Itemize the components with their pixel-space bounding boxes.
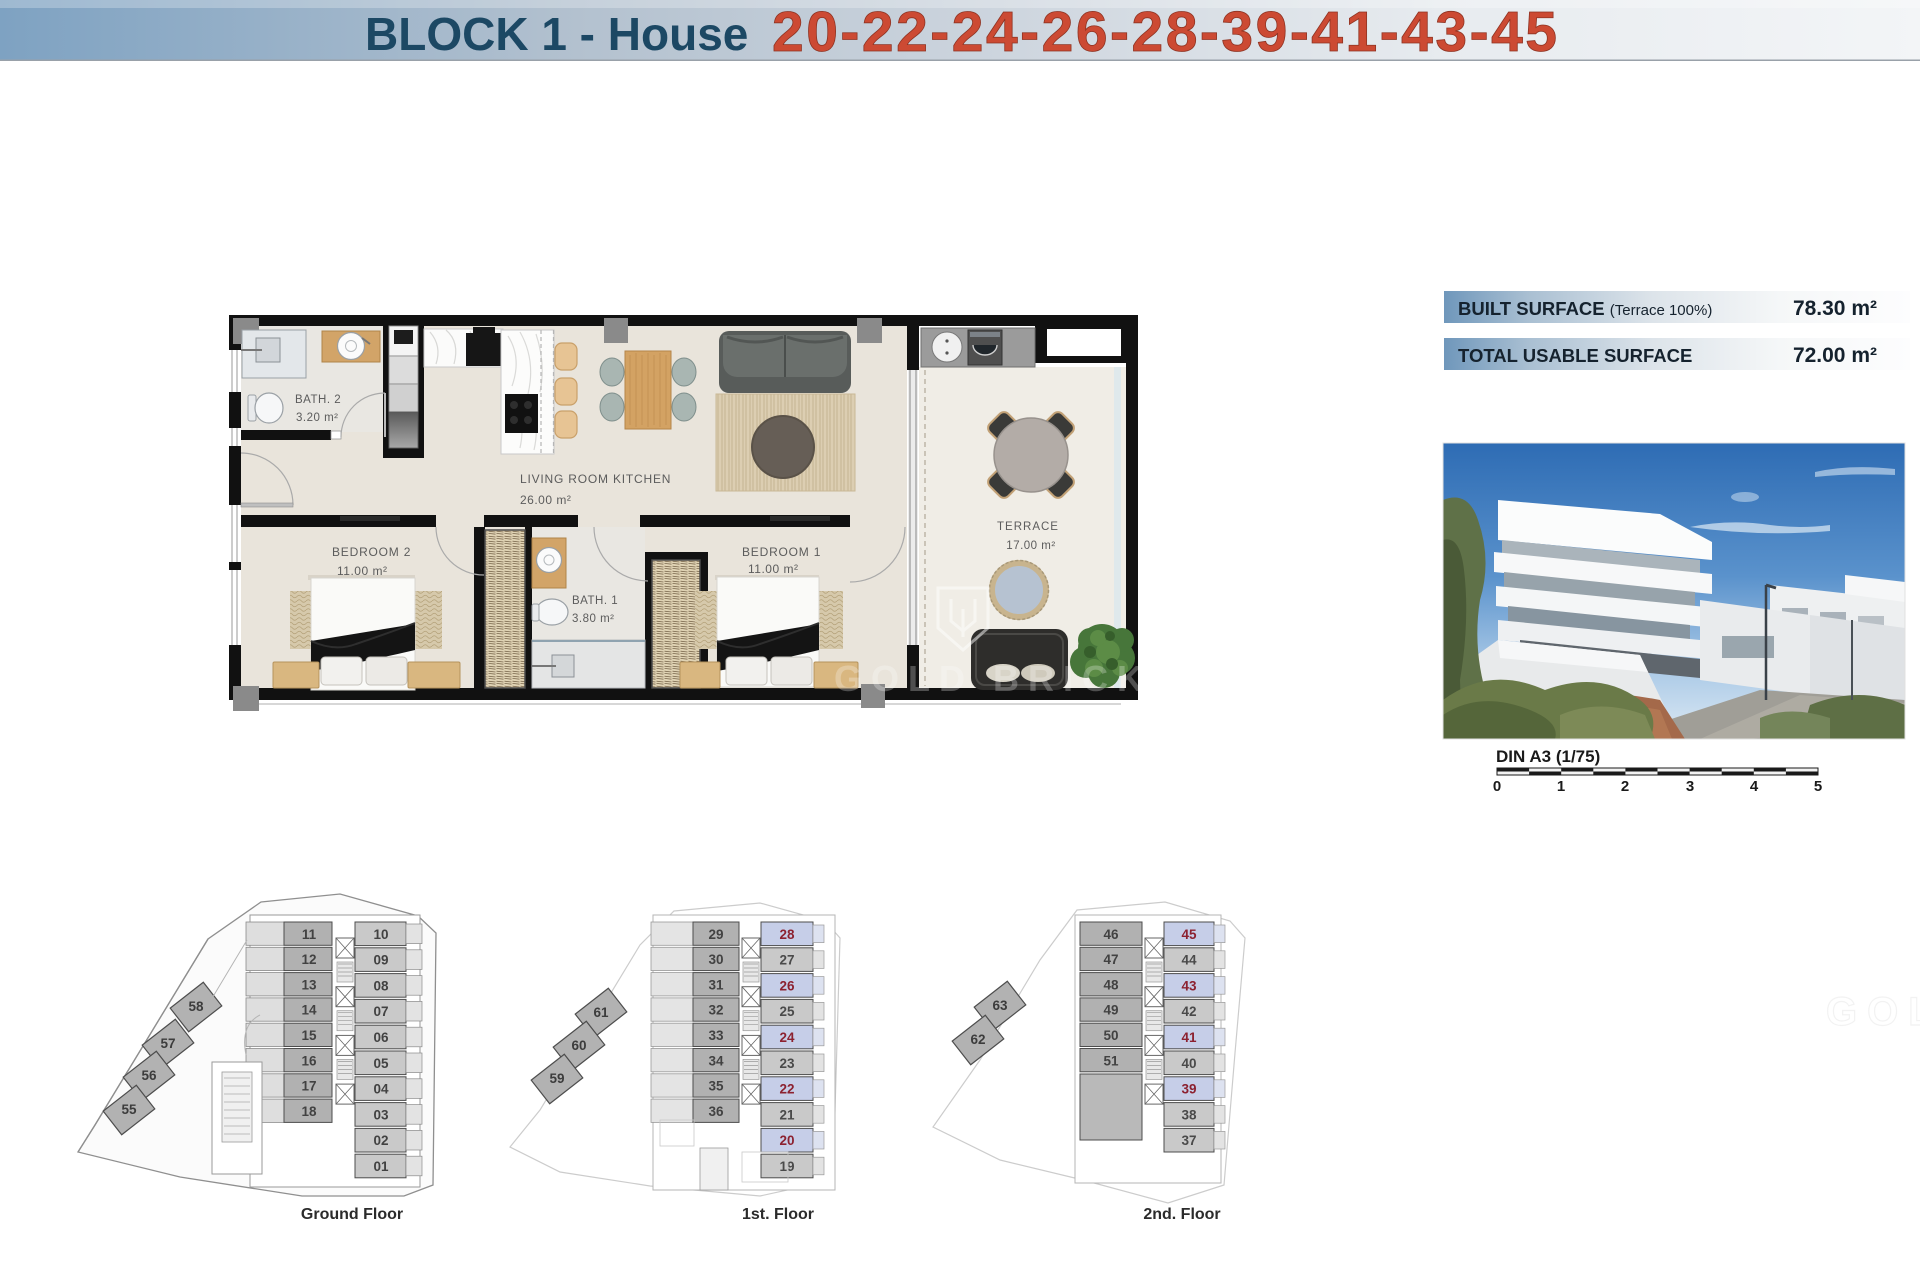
svg-text:45: 45 [1181,927,1197,942]
svg-text:TERRACE: TERRACE [997,521,1059,533]
svg-text:40: 40 [1181,1056,1196,1071]
svg-text:62: 62 [970,1032,985,1047]
svg-text:59: 59 [549,1071,564,1086]
svg-text:35: 35 [708,1079,724,1094]
svg-text:21: 21 [779,1107,795,1122]
svg-text:51: 51 [1103,1053,1119,1068]
svg-text:58: 58 [188,999,204,1014]
svg-text:36: 36 [708,1104,724,1119]
svg-text:57: 57 [160,1036,175,1051]
svg-text:19: 19 [779,1159,794,1174]
svg-text:06: 06 [373,1030,389,1045]
svg-text:20-22-24-26-28-39-41-43-45: 20-22-24-26-28-39-41-43-45 [772,0,1559,64]
svg-text:31: 31 [708,977,724,992]
svg-text:37: 37 [1181,1133,1196,1148]
svg-text:55: 55 [121,1102,137,1117]
svg-text:07: 07 [373,1004,388,1019]
svg-text:18: 18 [301,1104,317,1119]
svg-text:63: 63 [992,998,1008,1013]
svg-text:16: 16 [301,1053,317,1068]
svg-text:41: 41 [1181,1030,1197,1045]
svg-text:3.20 m²: 3.20 m² [296,412,339,424]
svg-text:78.30 m²: 78.30 m² [1793,297,1877,320]
svg-text:38: 38 [1181,1107,1197,1122]
svg-text:26.00 m²: 26.00 m² [520,493,571,507]
svg-text:56: 56 [141,1068,157,1083]
svg-text:11.00 m²: 11.00 m² [748,562,798,576]
svg-text:61: 61 [593,1005,609,1020]
svg-text:10: 10 [373,927,388,942]
svg-text:GOLD: GOLD [1826,990,1920,1034]
svg-text:2nd. Floor: 2nd. Floor [1143,1206,1220,1223]
svg-text:BLOCK 1 - House: BLOCK 1 - House [365,8,748,60]
svg-text:30: 30 [708,952,723,967]
svg-text:1: 1 [1557,778,1565,795]
svg-text:BEDROOM 2: BEDROOM 2 [332,545,411,559]
svg-text:32: 32 [708,1003,723,1018]
svg-text:20: 20 [779,1133,794,1148]
svg-text:03: 03 [373,1107,389,1122]
svg-text:3.80 m²: 3.80 m² [572,613,615,625]
svg-text:4: 4 [1750,778,1759,795]
svg-text:33: 33 [708,1028,724,1043]
svg-text:11.00 m²: 11.00 m² [337,564,387,578]
svg-text:Ground Floor: Ground Floor [301,1206,403,1223]
svg-text:DIN A3 (1/75): DIN A3 (1/75) [1496,747,1600,766]
svg-text:25: 25 [779,1004,795,1019]
svg-text:44: 44 [1181,953,1197,968]
svg-text:02: 02 [373,1133,388,1148]
svg-text:39: 39 [1181,1082,1196,1097]
svg-text:13: 13 [301,977,317,992]
svg-text:LIVING ROOM KITCHEN: LIVING ROOM KITCHEN [520,472,671,486]
svg-text:01: 01 [373,1159,389,1174]
svg-text:3: 3 [1686,778,1694,795]
svg-text:17.00 m²: 17.00 m² [1006,540,1055,552]
svg-text:TOTAL USABLE SURFACE: TOTAL USABLE SURFACE [1458,345,1692,366]
svg-text:08: 08 [373,978,389,993]
svg-text:60: 60 [571,1038,586,1053]
svg-text:24: 24 [779,1030,795,1045]
svg-text:15: 15 [301,1028,317,1043]
svg-text:50: 50 [1103,1028,1118,1043]
svg-text:BUILT SURFACE (Terrace 100%): BUILT SURFACE (Terrace 100%) [1458,298,1712,319]
svg-text:46: 46 [1103,927,1119,942]
svg-text:04: 04 [373,1082,389,1097]
svg-text:2: 2 [1621,778,1629,795]
svg-text:BATH. 2: BATH. 2 [295,394,341,406]
svg-text:14: 14 [301,1003,317,1018]
svg-text:23: 23 [779,1056,795,1071]
svg-text:29: 29 [708,927,723,942]
svg-text:34: 34 [708,1053,724,1068]
svg-text:09: 09 [373,953,388,968]
svg-text:47: 47 [1103,952,1118,967]
svg-text:17: 17 [301,1079,316,1094]
svg-text:11: 11 [302,927,317,942]
svg-text:27: 27 [779,953,794,968]
svg-text:26: 26 [779,978,795,993]
svg-text:12: 12 [301,952,316,967]
svg-text:22: 22 [779,1082,794,1097]
svg-text:42: 42 [1181,1004,1196,1019]
svg-text:43: 43 [1181,978,1197,993]
svg-text:BATH. 1: BATH. 1 [572,595,618,607]
svg-text:0: 0 [1493,778,1501,795]
svg-text:28: 28 [779,927,795,942]
svg-text:GOLD BRICKS: GOLD BRICKS [834,658,1185,699]
svg-text:5: 5 [1814,778,1822,795]
svg-text:72.00 m²: 72.00 m² [1793,344,1877,367]
svg-text:49: 49 [1103,1003,1118,1018]
svg-text:BEDROOM 1: BEDROOM 1 [742,545,821,559]
svg-text:48: 48 [1103,977,1119,992]
svg-text:1st. Floor: 1st. Floor [742,1206,814,1223]
svg-text:05: 05 [373,1056,389,1071]
